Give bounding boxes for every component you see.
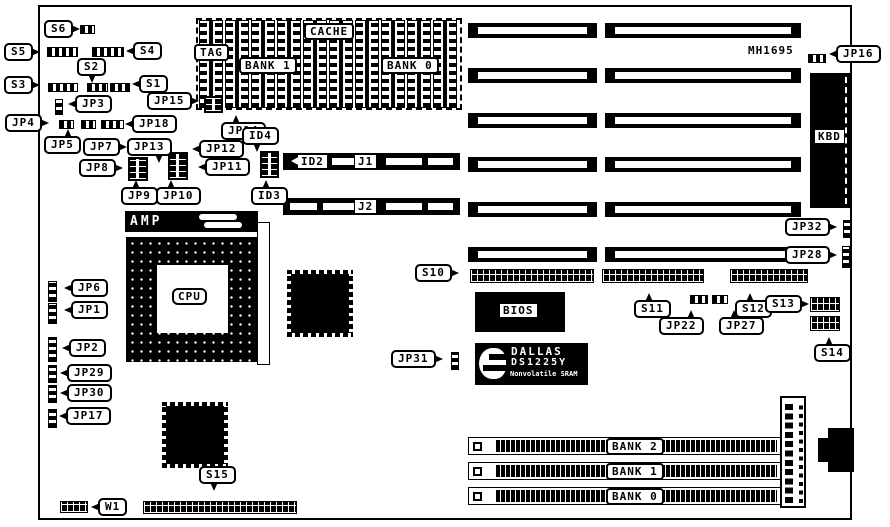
callout-s2: S2 bbox=[77, 58, 106, 76]
isa-slot-stripe bbox=[615, 251, 791, 258]
callout-s10: S10 bbox=[415, 264, 452, 282]
motherboard-jumper-diagram: TAG CACHE BANK 1 BANK 0 ID2 J1 J2 KBD MH… bbox=[0, 0, 890, 527]
id2-label: ID2 bbox=[298, 155, 327, 168]
s10-header bbox=[470, 269, 594, 283]
board-model-text: MH1695 bbox=[748, 44, 794, 57]
s5-switch bbox=[47, 47, 78, 57]
isa-slot-stripe bbox=[615, 72, 791, 79]
simm-bank2-label: BANK 2 bbox=[606, 438, 664, 455]
simm-clip-left bbox=[473, 492, 482, 501]
isa-slot-segment bbox=[468, 68, 597, 83]
jp22-jumper bbox=[690, 295, 708, 304]
isa-slot-segment bbox=[605, 247, 801, 262]
isa-slot-segment bbox=[605, 68, 801, 83]
s14-header bbox=[810, 316, 840, 331]
callout-jp30: JP30 bbox=[67, 384, 112, 402]
jp3-jumper bbox=[55, 99, 63, 115]
simm-clip-left bbox=[473, 442, 482, 451]
callout-s15: S15 bbox=[199, 466, 236, 484]
callout-jp12: JP12 bbox=[199, 140, 244, 158]
isa-slot-segment bbox=[468, 157, 597, 172]
callout-jp11: JP11 bbox=[205, 158, 250, 176]
callout-jp10: JP10 bbox=[156, 187, 201, 205]
cache-bank1-label: BANK 1 bbox=[239, 57, 297, 74]
w1-header bbox=[60, 501, 88, 513]
cache-chip bbox=[199, 20, 223, 108]
edge-connector-tab bbox=[818, 438, 830, 462]
callout-jp6: JP6 bbox=[71, 279, 108, 297]
amp-label: AMP bbox=[130, 214, 162, 229]
isa-slot-segment bbox=[468, 23, 597, 38]
callout-s5: S5 bbox=[4, 43, 33, 61]
qfp-chip-upper bbox=[287, 270, 353, 337]
callout-s4: S4 bbox=[133, 42, 162, 60]
id-jumper-block bbox=[260, 151, 279, 178]
callout-jp22: JP22 bbox=[659, 317, 704, 335]
socket-lever bbox=[257, 222, 270, 365]
callout-id4: ID4 bbox=[242, 127, 279, 145]
jp1-jumper bbox=[48, 303, 57, 324]
isa-slot-stripe bbox=[478, 117, 587, 124]
s3-switch bbox=[48, 83, 78, 92]
isa-slot-segment bbox=[605, 202, 801, 217]
isa-slot-stripe bbox=[478, 161, 587, 168]
isa-slot-stripe bbox=[478, 27, 587, 34]
callout-jp2: JP2 bbox=[69, 339, 106, 357]
isa-slot-segment bbox=[605, 23, 801, 38]
callout-jp1: JP1 bbox=[71, 301, 108, 319]
j2-label: J2 bbox=[355, 200, 376, 213]
jp16-jumper bbox=[808, 54, 826, 63]
callout-s11: S11 bbox=[634, 300, 671, 318]
isa-slot-stripe bbox=[615, 27, 791, 34]
isa-slot-segment bbox=[605, 113, 801, 128]
cpu-label: CPU bbox=[172, 288, 207, 305]
isa-slot-stripe bbox=[478, 206, 587, 213]
callout-s14: S14 bbox=[814, 344, 851, 362]
callout-id3: ID3 bbox=[251, 187, 288, 205]
callout-jp27: JP27 bbox=[719, 317, 764, 335]
callout-s6: S6 bbox=[44, 20, 73, 38]
cache-label: CACHE bbox=[304, 23, 354, 40]
jp6-jumper bbox=[48, 281, 57, 302]
simm-clip-left bbox=[473, 467, 482, 476]
callout-jp3: JP3 bbox=[75, 95, 112, 113]
callout-jp7: JP7 bbox=[83, 138, 120, 156]
isa-slot-stripe bbox=[478, 72, 587, 79]
callout-s3: S3 bbox=[4, 76, 33, 94]
power-connector bbox=[780, 396, 806, 508]
callout-jp13: JP13 bbox=[127, 138, 172, 156]
j1-label: J1 bbox=[355, 155, 376, 168]
dallas-logo-icon bbox=[479, 348, 506, 379]
s11-header bbox=[602, 269, 704, 283]
isa-slot-segment bbox=[468, 247, 597, 262]
callout-w1: W1 bbox=[98, 498, 127, 516]
jp27-jumper bbox=[712, 295, 728, 304]
callout-jp16: JP16 bbox=[836, 45, 881, 63]
jp15-jp14-block bbox=[204, 96, 223, 113]
jp31-jumper bbox=[451, 352, 459, 370]
amp-connector: AMP bbox=[125, 211, 258, 232]
bios-label: BIOS bbox=[499, 303, 538, 318]
callout-jp28: JP28 bbox=[785, 246, 830, 264]
callout-jp29: JP29 bbox=[67, 364, 112, 382]
qfp-chip-lower bbox=[162, 402, 228, 468]
simm-bank0-label: BANK 0 bbox=[606, 488, 664, 505]
cache-bank0-label: BANK 0 bbox=[381, 57, 439, 74]
callout-jp32: JP32 bbox=[785, 218, 830, 236]
dallas-description: Nonvolatile SRAM bbox=[510, 370, 577, 378]
callout-jp18: JP18 bbox=[132, 115, 177, 133]
simm-bank1-label: BANK 1 bbox=[606, 463, 664, 480]
edge-connector bbox=[828, 428, 854, 472]
cache-chip bbox=[355, 20, 379, 108]
callout-jp9: JP9 bbox=[121, 187, 158, 205]
isa-slot-stripe bbox=[478, 251, 587, 258]
callout-jp4: JP4 bbox=[5, 114, 42, 132]
s15-header bbox=[143, 501, 297, 514]
tag-label: TAG bbox=[194, 44, 229, 61]
s13-header bbox=[810, 297, 840, 312]
callout-s1: S1 bbox=[139, 75, 168, 93]
jp2-jumper bbox=[48, 337, 57, 362]
jp5-jumper bbox=[81, 120, 96, 129]
callout-s13: S13 bbox=[765, 295, 802, 313]
kbd-label: KBD bbox=[814, 129, 845, 144]
isa-slot-stripe bbox=[615, 206, 791, 213]
isa-slot-stripe bbox=[615, 117, 791, 124]
isa-slot-stripe bbox=[615, 161, 791, 168]
jp28-jumper bbox=[842, 246, 850, 268]
s12-header bbox=[730, 269, 808, 283]
callout-jp8: JP8 bbox=[79, 159, 116, 177]
callout-jp17: JP17 bbox=[66, 407, 111, 425]
dallas-part-number: DS1225Y bbox=[511, 357, 567, 368]
isa-slot-segment bbox=[468, 202, 597, 217]
s4-switch bbox=[92, 47, 124, 57]
isa-slot-segment bbox=[605, 157, 801, 172]
callout-jp31: JP31 bbox=[391, 350, 436, 368]
callout-jp5: JP5 bbox=[44, 136, 81, 154]
jp32-jumper bbox=[843, 220, 851, 238]
callout-jp15: JP15 bbox=[147, 92, 192, 110]
isa-slot-segment bbox=[468, 113, 597, 128]
s1-switch bbox=[110, 83, 130, 92]
